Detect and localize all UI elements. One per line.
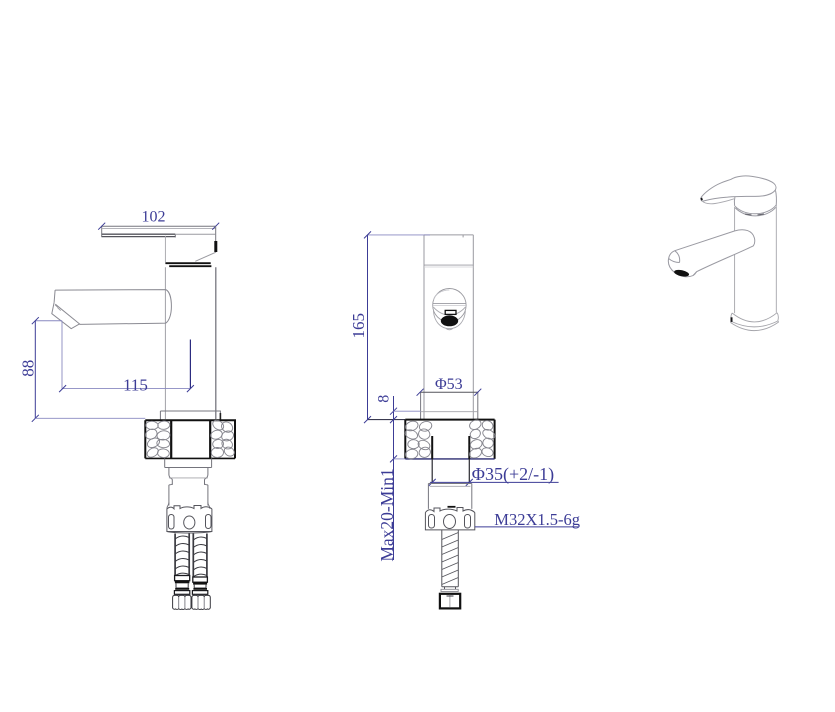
svg-text:165: 165 [349,313,368,339]
svg-text:Φ53: Φ53 [435,376,463,393]
svg-text:88: 88 [19,360,38,377]
svg-text:115: 115 [123,376,148,395]
svg-text:102: 102 [142,209,166,226]
svg-text:8: 8 [375,395,392,403]
svg-text:Max20-Min1: Max20-Min1 [377,468,397,561]
svg-text:M32X1.5-6g: M32X1.5-6g [494,510,580,529]
svg-text:Φ35(+2/-1): Φ35(+2/-1) [472,464,554,485]
